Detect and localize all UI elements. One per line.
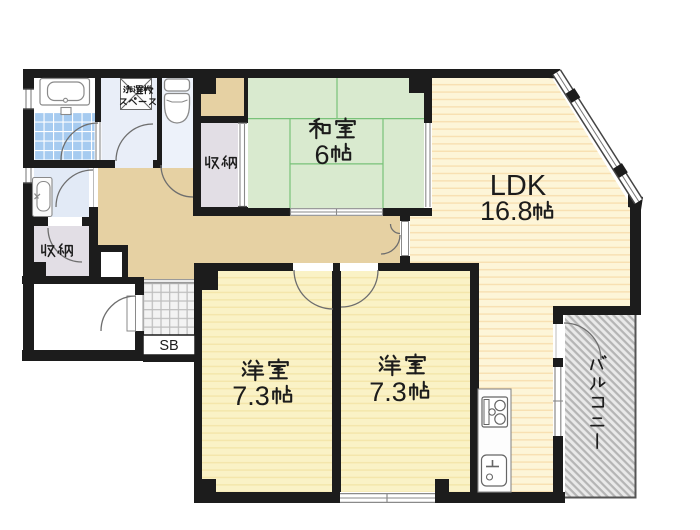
svg-text:SB: SB — [159, 338, 178, 354]
svg-text:16.8: 16.8 — [480, 196, 533, 226]
svg-text:7.3: 7.3 — [232, 381, 270, 411]
svg-text:6: 6 — [314, 140, 329, 170]
svg-text:7.3: 7.3 — [369, 377, 407, 407]
